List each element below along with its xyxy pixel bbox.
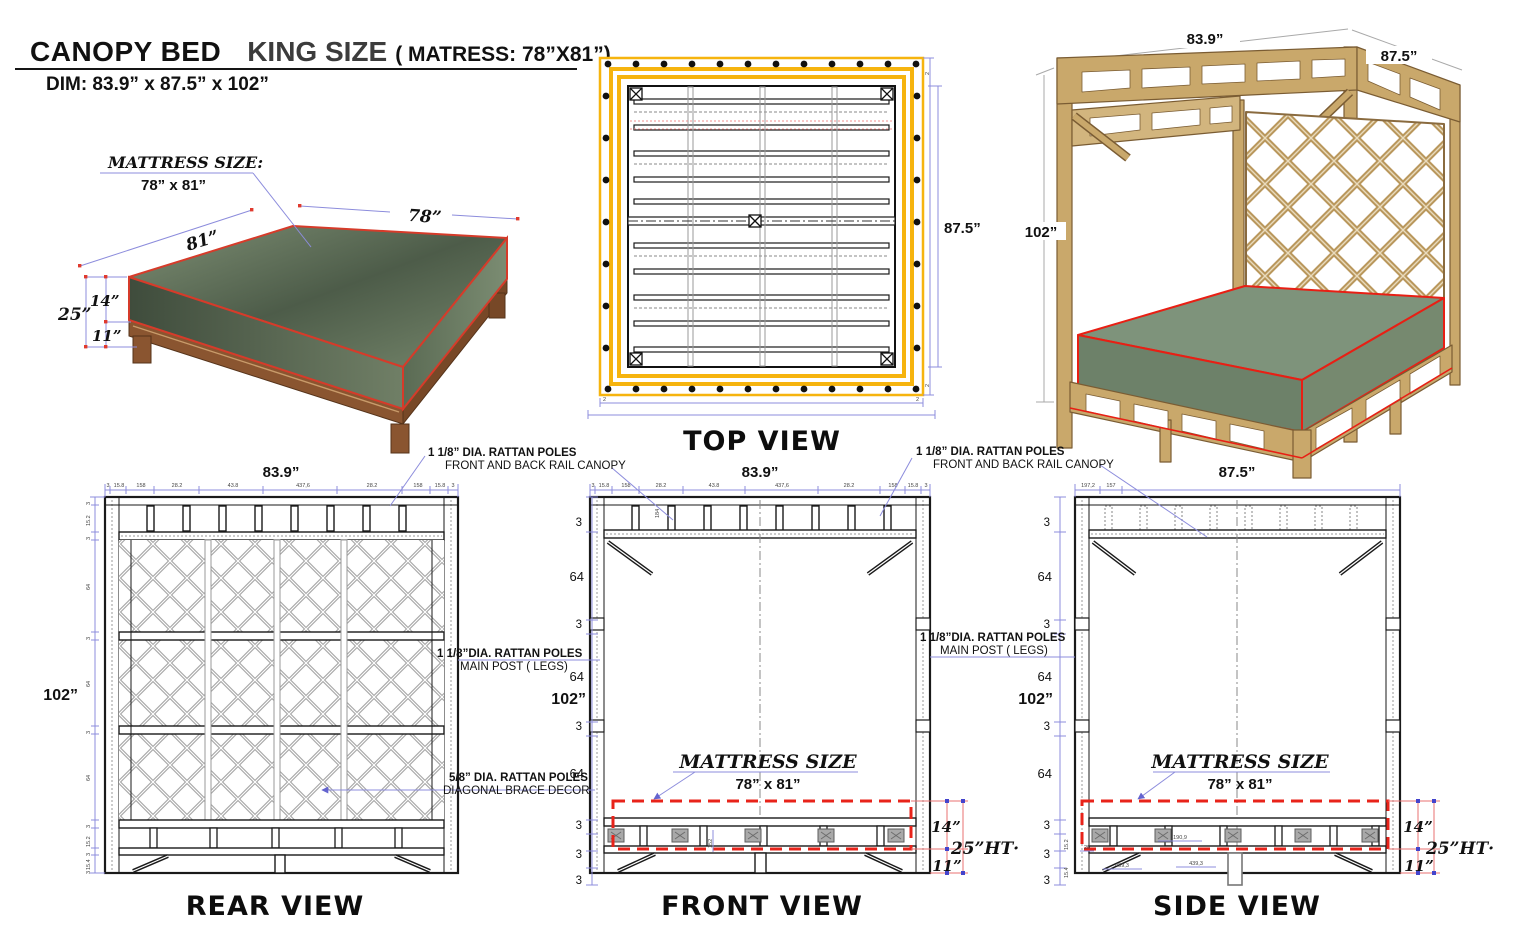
svg-text:439,3: 439,3	[1189, 861, 1203, 867]
svg-text:3: 3	[1044, 875, 1050, 887]
dim-25: 25”	[57, 305, 91, 325]
svg-text:3: 3	[576, 849, 582, 861]
svg-text:64: 64	[86, 775, 92, 781]
svg-text:28.2: 28.2	[367, 483, 378, 489]
svg-text:15.4: 15.4	[86, 859, 92, 870]
svg-text:3: 3	[1044, 619, 1050, 631]
side-left-dim	[1054, 497, 1066, 885]
svg-text:3: 3	[86, 871, 92, 874]
side-view: 87.5” 197,2 157 3 64 3 64 3 64 3 3 3 15.…	[1018, 464, 1494, 922]
svg-text:3: 3	[591, 483, 594, 489]
side-dim-left: 102”	[1018, 691, 1053, 708]
svg-text:437,6: 437,6	[296, 483, 310, 489]
top-view: 87.5” 2 2 2 2 TOP VIEW	[588, 58, 981, 457]
front-top-ticks: 3 15.8 158 28.2 43.8 437,6 28.2 158 15.8…	[591, 483, 927, 489]
mattress-size-callout-title: MATTRESS SIZE:	[107, 153, 263, 172]
svg-text:3: 3	[576, 875, 582, 887]
svg-text:1 1/8”DIA. RATTAN POLES: 1 1/8”DIA. RATTAN POLES	[920, 632, 1066, 644]
top-view-dim-width: 87.5”	[944, 220, 981, 237]
side-dim-top: 87.5”	[1219, 464, 1256, 481]
svg-text:3: 3	[576, 820, 582, 832]
side-callout-title: MATTRESS SIZE	[1150, 751, 1329, 773]
side-dim-25: 25”HT·	[1425, 839, 1494, 859]
canopy-bed-photo: 83.9” 87.5” 102”	[1014, 29, 1462, 478]
rear-dim-left: 102”	[43, 687, 78, 704]
front-top-dim	[590, 484, 930, 497]
dim-11: 11”	[92, 327, 122, 345]
side-dim-11: 11”	[1404, 857, 1434, 875]
svg-text:64: 64	[86, 584, 92, 590]
drawing-canvas: MATTRESS SIZE: 78” x 81” 81” 78” 14” 25”…	[0, 0, 1536, 933]
side-top-dim	[1075, 484, 1400, 497]
svg-text:3: 3	[86, 825, 92, 828]
svg-text:1 1/8” DIA. RATTAN POLES: 1 1/8” DIA. RATTAN POLES	[428, 447, 577, 459]
svg-text:3: 3	[576, 517, 582, 529]
mattress-illustration: MATTRESS SIZE: 78” x 81” 81” 78” 14” 25”…	[57, 153, 519, 453]
svg-text:3: 3	[86, 502, 92, 505]
svg-text:64: 64	[1038, 669, 1052, 684]
svg-text:3: 3	[451, 483, 454, 489]
photo-dim-right: 87.5”	[1381, 48, 1418, 65]
svg-text:64: 64	[1038, 569, 1052, 584]
rear-view-label: REAR VIEW	[186, 891, 365, 922]
svg-text:DIAGONAL BRACE DECOR: DIAGONAL BRACE DECOR	[443, 785, 590, 797]
side-tick-157: 157	[1106, 483, 1115, 489]
svg-text:5/8” DIA. RATTAN POLES: 5/8” DIA. RATTAN POLES	[449, 772, 588, 784]
svg-text:MAIN POST ( LEGS): MAIN POST ( LEGS)	[940, 645, 1048, 657]
side-height-dims: 14” 25”HT· 11”	[1388, 799, 1494, 875]
svg-text:3: 3	[86, 853, 92, 856]
rear-left-ticks: 3 15.2 3 64 3 64 3 64 3 15.2 3 15.4 3	[86, 502, 92, 874]
rear-view: 83.9” 3 15.8 158 28.2 43.8 437,6 28.2 15…	[43, 464, 458, 922]
svg-text:3: 3	[86, 637, 92, 640]
svg-text:15.2: 15.2	[1064, 839, 1070, 850]
tick-2c: 2	[603, 397, 606, 403]
dim-14: 14”	[90, 292, 120, 310]
svg-text:MAIN POST ( LEGS): MAIN POST ( LEGS)	[460, 661, 568, 673]
svg-text:43.8: 43.8	[709, 483, 720, 489]
tick-2a: 2	[925, 72, 931, 75]
svg-text:64: 64	[570, 569, 584, 584]
dim-78: 78”	[407, 206, 442, 228]
side-view-label: SIDE VIEW	[1153, 891, 1321, 922]
svg-text:15.8: 15.8	[599, 483, 610, 489]
side-tick-1972: 197,2	[1081, 483, 1095, 489]
svg-text:15.8: 15.8	[908, 483, 919, 489]
svg-text:3: 3	[86, 537, 92, 540]
top-view-label: TOP VIEW	[683, 426, 841, 457]
mattress-size-callout-value: 78” x 81”	[141, 177, 206, 194]
svg-text:FRONT AND BACK RAIL CANOPY: FRONT AND BACK RAIL CANOPY	[445, 460, 626, 472]
front-dim-25: 25”HT·	[950, 839, 1019, 859]
front-view-label: FRONT VIEW	[661, 891, 863, 922]
svg-text:28.2: 28.2	[172, 483, 183, 489]
svg-text:3: 3	[576, 619, 582, 631]
front-callout-value: 78” x 81”	[735, 776, 800, 793]
svg-text:3: 3	[1044, 721, 1050, 733]
svg-text:3: 3	[86, 731, 92, 734]
tick-2d: 2	[916, 397, 919, 403]
svg-text:3: 3	[924, 483, 927, 489]
svg-text:15.8: 15.8	[435, 483, 446, 489]
svg-text:28.2: 28.2	[656, 483, 667, 489]
front-dim-left: 102”	[551, 691, 586, 708]
front-callout-title: MATTRESS SIZE	[678, 751, 857, 773]
front-dim-14: 14”	[931, 818, 961, 836]
svg-text:43.8: 43.8	[228, 483, 239, 489]
svg-text:FRONT AND BACK RAIL CANOPY: FRONT AND BACK RAIL CANOPY	[933, 459, 1114, 471]
svg-text:1 1/8” DIA. RATTAN POLES: 1 1/8” DIA. RATTAN POLES	[916, 446, 1065, 458]
svg-text:3: 3	[106, 483, 109, 489]
svg-text:437,6: 437,6	[775, 483, 789, 489]
rear-dim-top: 83.9”	[263, 464, 300, 481]
side-callout-value: 78” x 81”	[1207, 776, 1272, 793]
front-small-152: 152	[708, 839, 714, 848]
rear-left-dim	[90, 497, 105, 873]
svg-text:3: 3	[1044, 517, 1050, 529]
photo-dim-left: 102”	[1025, 224, 1058, 241]
svg-text:3: 3	[576, 721, 582, 733]
front-small-184: 184	[655, 509, 661, 518]
svg-text:158: 158	[413, 483, 422, 489]
svg-text:15.8: 15.8	[114, 483, 125, 489]
svg-text:439,3: 439,3	[1115, 863, 1129, 869]
annotation-main-post-right: 1 1/8”DIA. RATTAN POLES MAIN POST ( LEGS…	[920, 632, 1075, 657]
rear-top-dim	[105, 484, 458, 497]
front-view: 83.9” 3 15.8 158 28.2 43.8 437,6 28.2 15…	[551, 464, 1019, 922]
svg-text:3: 3	[1044, 849, 1050, 861]
svg-text:20: 20	[1084, 845, 1090, 851]
tick-2b: 2	[925, 384, 931, 387]
svg-text:1 1/8”DIA. RATTAN POLES: 1 1/8”DIA. RATTAN POLES	[437, 648, 583, 660]
photo-dim-top: 83.9”	[1187, 31, 1224, 48]
svg-text:15.2: 15.2	[86, 836, 92, 847]
svg-text:64: 64	[86, 681, 92, 687]
blueprint-sheet: CANOPY BEDKING SIZE( MATRESS: 78”X81”) D…	[0, 0, 1536, 933]
side-dim-14: 14”	[1403, 818, 1433, 836]
svg-text:3: 3	[1044, 820, 1050, 832]
svg-text:158: 158	[136, 483, 145, 489]
svg-text:190,9: 190,9	[1173, 835, 1187, 841]
svg-text:15.2: 15.2	[86, 515, 92, 526]
svg-text:158: 158	[621, 483, 630, 489]
svg-text:64: 64	[1038, 766, 1052, 781]
svg-text:64: 64	[570, 669, 584, 684]
svg-text:15.4: 15.4	[1064, 867, 1070, 878]
front-dim-top: 83.9”	[742, 464, 779, 481]
svg-text:28.2: 28.2	[844, 483, 855, 489]
front-dim-11: 11”	[932, 857, 962, 875]
